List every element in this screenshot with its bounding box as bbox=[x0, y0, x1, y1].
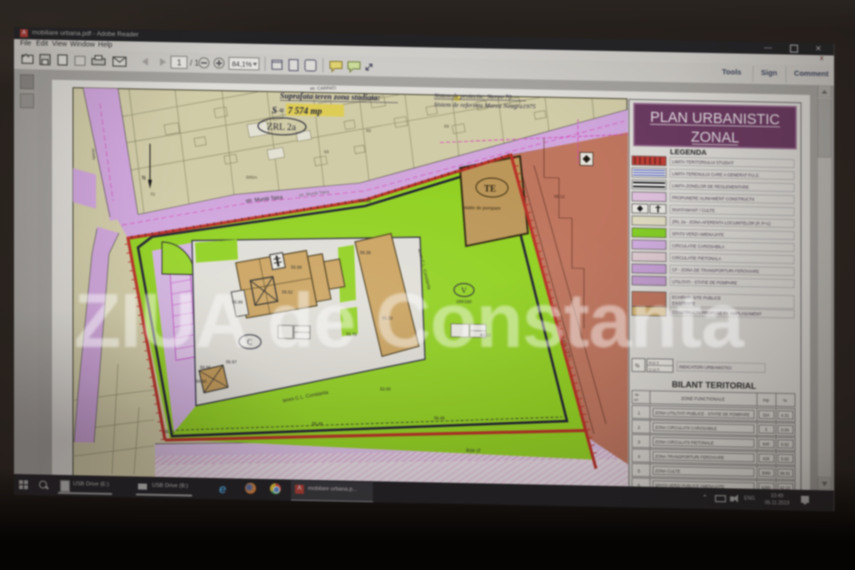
svg-text:BILANT TERITORIAL: BILANT TERITORIAL bbox=[672, 379, 756, 391]
svg-text:69: 69 bbox=[444, 124, 450, 129]
svg-text:59.12: 59.12 bbox=[554, 194, 565, 199]
svg-text:%: % bbox=[635, 363, 640, 369]
svg-text:686m: 686m bbox=[246, 175, 258, 180]
svg-text:5.52: 5.52 bbox=[781, 456, 790, 461]
svg-text:TE: TE bbox=[484, 183, 496, 193]
svg-text:65: 65 bbox=[366, 128, 372, 133]
svg-text:56.49: 56.49 bbox=[312, 421, 323, 426]
svg-text:56.38: 56.38 bbox=[360, 250, 371, 255]
svg-text:strada: strada bbox=[91, 148, 97, 160]
svg-text:640: 640 bbox=[763, 442, 771, 447]
svg-text:56.61: 56.61 bbox=[164, 429, 175, 434]
svg-text:68: 68 bbox=[324, 149, 330, 154]
svg-text:mp: mp bbox=[763, 398, 770, 403]
svg-text:Comment: Comment bbox=[794, 69, 829, 79]
svg-text:38.01: 38.01 bbox=[780, 471, 791, 476]
svg-text:ZONE FUNCTIONALE: ZONE FUNCTIONALE bbox=[681, 396, 725, 402]
svg-text:8.52: 8.52 bbox=[781, 442, 790, 447]
svg-text:CIRCULATIE CAROSABILA: CIRCULATIE CAROSABILA bbox=[672, 243, 725, 249]
svg-text:linie cf: linie cf bbox=[466, 448, 481, 454]
svg-text:70: 70 bbox=[150, 192, 156, 197]
svg-text:56.96: 56.96 bbox=[200, 365, 211, 370]
svg-text:Sign: Sign bbox=[761, 68, 778, 77]
svg-text:ZONA CULTE: ZONA CULTE bbox=[655, 468, 681, 474]
svg-text:418: 418 bbox=[763, 456, 771, 461]
svg-text:4.31: 4.31 bbox=[781, 413, 790, 418]
svg-text:324: 324 bbox=[763, 413, 771, 418]
svg-text:56.90: 56.90 bbox=[196, 379, 207, 384]
svg-text:ZRL 2a: ZRL 2a bbox=[267, 123, 297, 134]
svg-text:statie de pompare: statie de pompare bbox=[464, 205, 501, 211]
svg-text:SPATII VERZI AMENAJATE: SPATII VERZI AMENAJATE bbox=[672, 231, 724, 237]
svg-text:62.00: 62.00 bbox=[380, 386, 391, 391]
svg-text:INDICATORI URBANISTICI: INDICATORI URBANISTICI bbox=[679, 364, 732, 370]
svg-text:C.U.T.: C.U.T. bbox=[649, 367, 660, 372]
svg-text:Tools: Tools bbox=[722, 67, 741, 76]
svg-text:56.30: 56.30 bbox=[360, 198, 371, 203]
svg-text:3080: 3080 bbox=[761, 471, 771, 476]
svg-text:%: % bbox=[783, 398, 787, 403]
svg-text:1: 1 bbox=[177, 58, 182, 67]
svg-text:56.58: 56.58 bbox=[291, 265, 302, 270]
svg-text:INVATAMANT / CULTE: INVATAMANT / CULTE bbox=[672, 207, 715, 213]
svg-text:0.04: 0.04 bbox=[781, 427, 790, 432]
svg-text:56.46: 56.46 bbox=[434, 415, 445, 420]
svg-text:CIRCULATIE PIETONALA: CIRCULATIE PIETONALA bbox=[672, 255, 721, 261]
svg-text:str. CARPATI: str. CARPATI bbox=[310, 86, 336, 91]
svg-text:84,1%: 84,1% bbox=[232, 61, 252, 68]
svg-text:N: N bbox=[142, 176, 146, 182]
svg-text:S =: S = bbox=[272, 105, 284, 115]
svg-text:7 574 mp: 7 574 mp bbox=[288, 106, 322, 117]
svg-text:LEGENDA: LEGENDA bbox=[670, 147, 707, 157]
svg-text:crt: crt bbox=[634, 398, 638, 402]
svg-text:/ 1: / 1 bbox=[190, 59, 199, 68]
